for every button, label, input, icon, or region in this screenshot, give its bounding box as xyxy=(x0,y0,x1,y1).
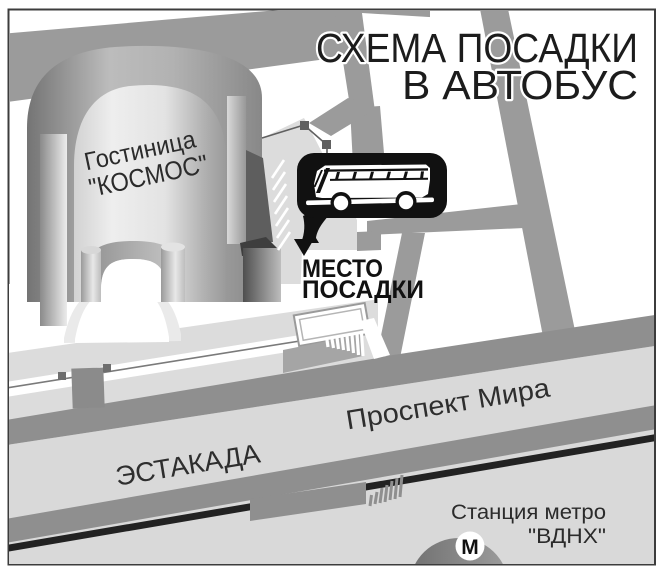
svg-text:ПОСАДКИ: ПОСАДКИ xyxy=(302,276,424,304)
svg-text:"ВДНХ": "ВДНХ" xyxy=(528,525,606,548)
svg-text:М: М xyxy=(461,536,479,559)
svg-text:В АВТОБУС: В АВТОБУС xyxy=(402,62,638,108)
svg-text:Станция метро: Станция метро xyxy=(451,501,606,524)
